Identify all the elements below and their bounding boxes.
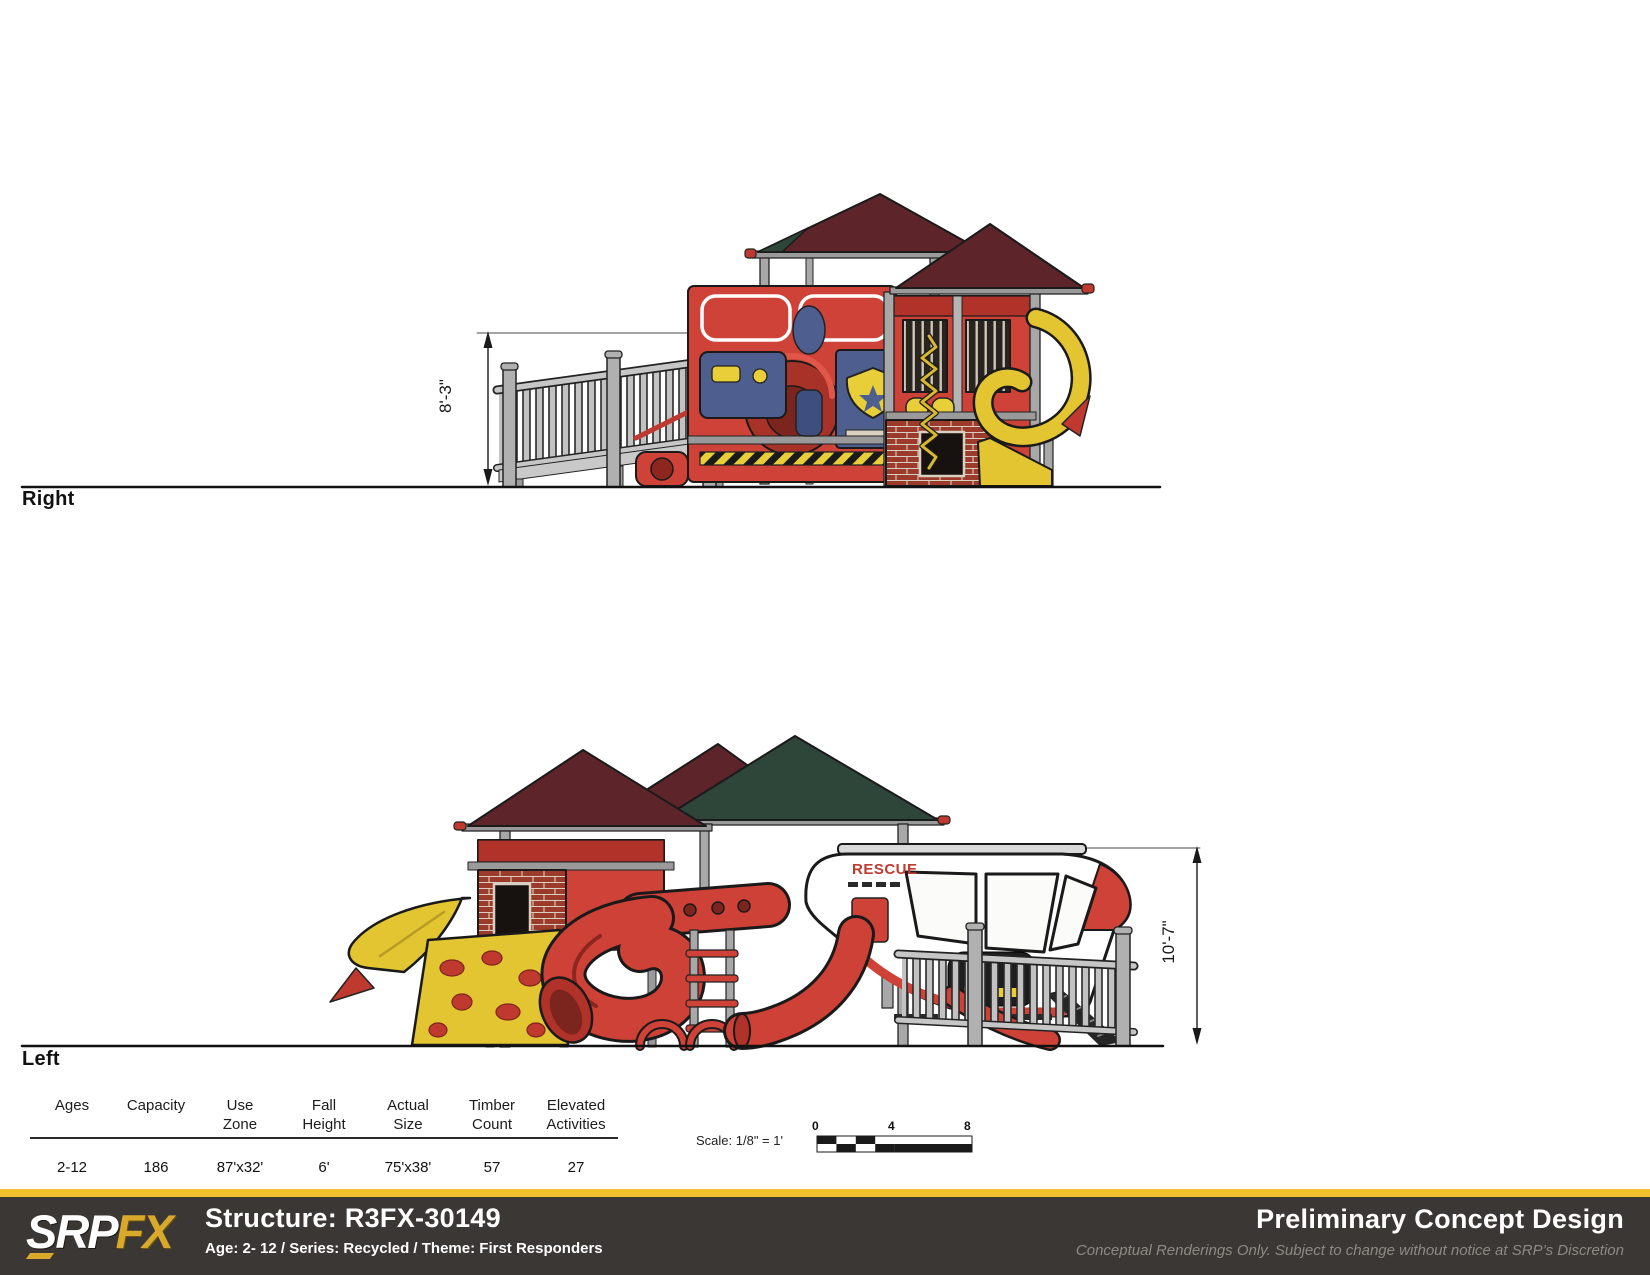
- spec-col-use-zone: UseZone: [198, 1096, 282, 1134]
- scale-tick-4: 4: [888, 1119, 895, 1133]
- spec-col-fall-height: FallHeight: [282, 1096, 366, 1134]
- spec-value-actual-size: 75'x38': [366, 1159, 450, 1176]
- concept-design-sheet: RESCUE: [0, 0, 1650, 1275]
- right-elevation-drawing: [22, 194, 1160, 487]
- spec-value-capacity: 186: [114, 1159, 198, 1176]
- scale-tick-8: 8: [964, 1119, 971, 1133]
- disclaimer-text: Conceptual Renderings Only. Subject to c…: [1076, 1242, 1624, 1259]
- scale-label: Scale: 1/8" = 1': [696, 1133, 783, 1148]
- spec-col-actual-size: ActualSize: [366, 1096, 450, 1134]
- scale-tick-0: 0: [812, 1119, 819, 1133]
- srpfx-logo-fx: FX: [116, 1205, 172, 1258]
- title-block-footer: SRPFX Structure: R3FX-30149 Age: 2- 12 /…: [0, 1197, 1650, 1275]
- spec-value-ages: 2-12: [30, 1159, 114, 1176]
- rescue-vehicle-label: RESCUE: [852, 861, 918, 878]
- right-height-dimension: 8'-3": [436, 354, 456, 438]
- spec-col-timber-count: TimberCount: [450, 1096, 534, 1134]
- structure-subtitle: Age: 2- 12 / Series: Recycled / Theme: F…: [205, 1240, 603, 1257]
- spec-table: Ages Capacity UseZone FallHeight ActualS…: [30, 1096, 618, 1176]
- spec-table-header: Ages Capacity UseZone FallHeight ActualS…: [30, 1096, 618, 1139]
- spec-value-fall-height: 6': [282, 1159, 366, 1176]
- spec-table-values: 2-12 186 87'x32' 6' 75'x38' 57 27: [30, 1159, 618, 1176]
- spec-col-ages: Ages: [30, 1096, 114, 1134]
- spec-value-elevated-activities: 27: [534, 1159, 618, 1176]
- spec-col-elevated-activities: ElevatedActivities: [534, 1096, 618, 1134]
- left-height-dimension: 10'-7": [1159, 900, 1179, 984]
- srpfx-logo-accent: [26, 1253, 54, 1259]
- spec-value-use-zone: 87'x32': [198, 1159, 282, 1176]
- accent-divider-bar: [0, 1189, 1650, 1197]
- srpfx-logo-srp: SRP: [26, 1205, 117, 1258]
- left-view-label: Left: [22, 1048, 60, 1071]
- right-view-label: Right: [22, 488, 75, 511]
- spec-col-capacity: Capacity: [114, 1096, 198, 1134]
- elevation-drawings: RESCUE: [0, 0, 1650, 1275]
- structure-title: Structure: R3FX-30149: [205, 1203, 501, 1234]
- document-type-title: Preliminary Concept Design: [1256, 1204, 1624, 1235]
- scale-bar: [817, 1136, 972, 1152]
- spec-value-timber-count: 57: [450, 1159, 534, 1176]
- left-elevation-drawing: RESCUE: [22, 736, 1202, 1051]
